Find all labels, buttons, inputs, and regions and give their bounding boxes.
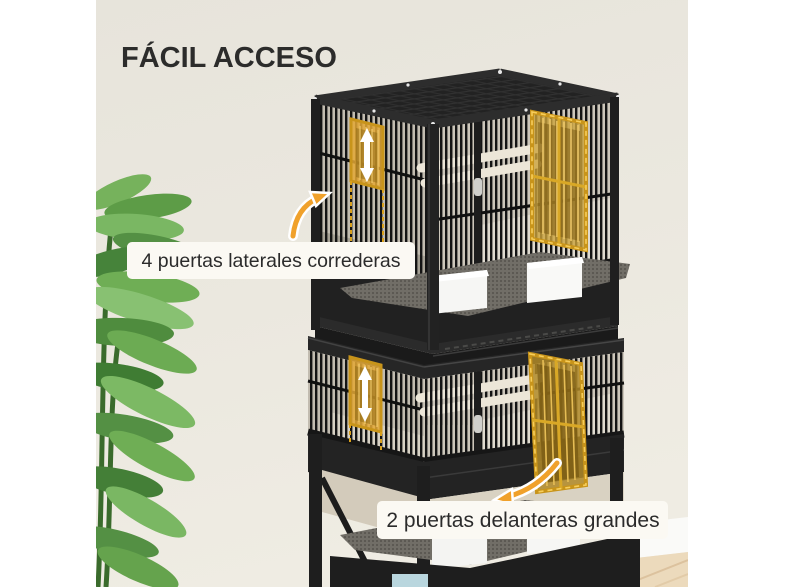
- svg-text:4 puertas laterales correderas: 4 puertas laterales correderas: [141, 250, 400, 272]
- svg-text:FÁCIL ACCESO: FÁCIL ACCESO: [121, 40, 337, 74]
- svg-text:2 puertas delanteras grandes: 2 puertas delanteras grandes: [386, 509, 659, 532]
